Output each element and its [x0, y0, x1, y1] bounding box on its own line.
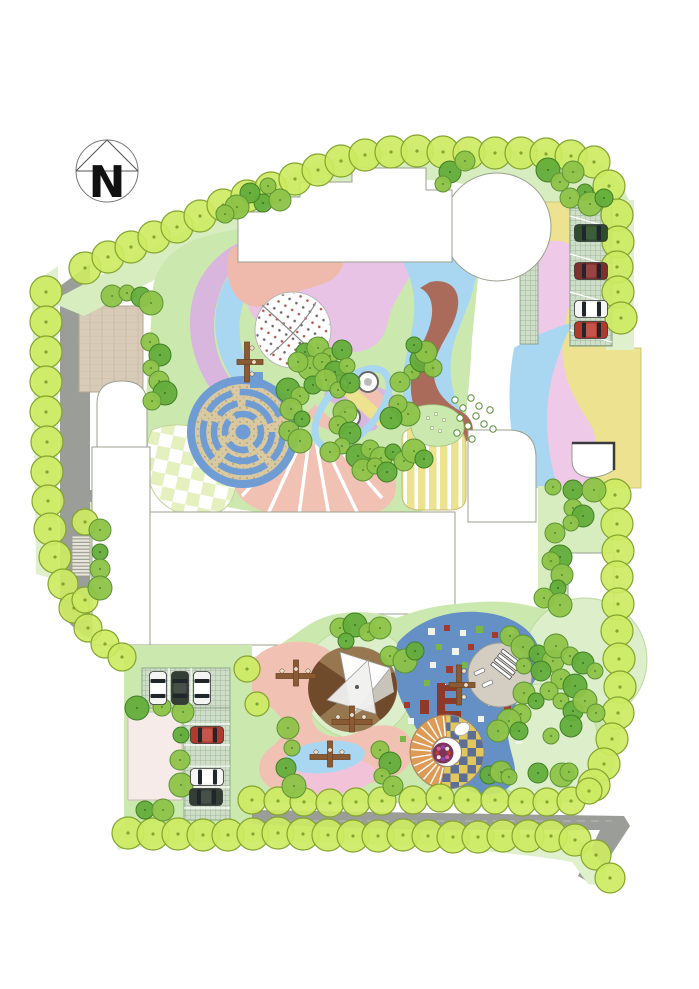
- perimeter-tree: [32, 485, 64, 517]
- perimeter-tree: [39, 541, 71, 573]
- bush: [452, 397, 458, 403]
- perimeter-tree: [30, 396, 62, 428]
- parked-car: [575, 301, 608, 318]
- dark-tree: [415, 450, 433, 468]
- perimeter-tree: [238, 786, 266, 814]
- bush: [481, 421, 487, 427]
- parked-car: [575, 225, 608, 242]
- bush: [468, 395, 474, 401]
- parked-car: [575, 322, 608, 339]
- perimeter-tree: [399, 786, 427, 814]
- perimeter-tree: [234, 656, 260, 682]
- pixel-square: [444, 625, 450, 631]
- medium-tree: [143, 392, 161, 410]
- perimeter-tree: [576, 778, 602, 804]
- dark-tree: [332, 340, 352, 360]
- perimeter-tree: [30, 366, 62, 398]
- perimeter-tree: [605, 302, 637, 334]
- perimeter-tree: [30, 336, 62, 368]
- parked-car: [575, 263, 608, 280]
- flower: [447, 751, 451, 755]
- parked-car: [194, 672, 211, 705]
- medium-tree: [587, 704, 605, 722]
- medium-tree: [152, 799, 174, 821]
- medium-tree: [277, 717, 299, 739]
- flower: [437, 747, 441, 751]
- flower-dot: [442, 418, 445, 421]
- parked-car: [191, 769, 224, 786]
- perimeter-tree: [30, 276, 62, 308]
- medium-tree: [139, 291, 163, 315]
- dark-tree: [340, 373, 360, 393]
- medium-tree: [288, 429, 312, 453]
- dark-tree: [173, 727, 189, 743]
- building-rounded-corner: [468, 430, 536, 522]
- flower-dot: [426, 416, 429, 419]
- parked-car: [190, 789, 223, 806]
- bush: [457, 415, 463, 421]
- pixel-square: [400, 736, 406, 742]
- flower: [441, 745, 445, 749]
- medium-tree: [435, 176, 451, 192]
- bush: [473, 413, 479, 419]
- parked-car: [191, 727, 224, 744]
- medium-tree: [455, 151, 475, 171]
- dark-tree: [531, 661, 551, 681]
- perimeter-tree: [601, 615, 633, 647]
- medium-tree: [170, 750, 190, 770]
- dark-tree: [125, 696, 149, 720]
- medium-tree: [516, 658, 532, 674]
- pixel-square: [492, 632, 498, 638]
- medium-tree: [89, 519, 111, 541]
- medium-tree: [216, 205, 234, 223]
- perimeter-tree: [31, 456, 63, 488]
- pavilion-box: [572, 443, 614, 477]
- perimeter-tree: [316, 789, 344, 817]
- pixel-square: [408, 718, 414, 724]
- medium-tree: [260, 178, 276, 194]
- flower: [445, 747, 449, 751]
- dark-tree: [380, 407, 402, 429]
- pixel-square: [452, 648, 459, 655]
- pixel-square: [430, 662, 436, 668]
- flower-dot: [438, 429, 441, 432]
- perimeter-tree: [454, 786, 482, 814]
- medium-tree: [545, 479, 561, 495]
- flower-dot: [430, 426, 433, 429]
- bush: [465, 423, 471, 429]
- building-circular: [443, 173, 551, 281]
- medium-tree: [548, 593, 572, 617]
- dark-tree: [528, 693, 544, 709]
- paved-plaza: [79, 306, 143, 392]
- pixel-square: [478, 716, 484, 722]
- compass-label: N: [89, 157, 126, 208]
- medium-tree: [288, 352, 308, 372]
- flower: [437, 755, 441, 759]
- flower: [441, 757, 445, 761]
- parked-car: [172, 672, 189, 705]
- dark-tree: [528, 763, 548, 783]
- dark-tree: [136, 801, 154, 819]
- medium-tree: [560, 188, 580, 208]
- dark-tree: [560, 715, 582, 737]
- dark-tree: [377, 462, 397, 482]
- dark-tree: [510, 722, 528, 740]
- medium-tree: [563, 515, 579, 531]
- bush: [454, 430, 460, 436]
- medium-tree: [88, 576, 112, 600]
- pixel-square: [468, 644, 474, 650]
- perimeter-tree: [34, 513, 66, 545]
- site-plan-svg: N: [0, 0, 699, 989]
- dark-tree: [406, 642, 424, 660]
- bush: [490, 426, 496, 432]
- bush: [476, 403, 482, 409]
- pixel-square: [428, 628, 435, 635]
- dark-tree: [338, 633, 354, 649]
- medium-tree: [587, 663, 603, 679]
- perimeter-tree: [508, 788, 536, 816]
- dark-tree: [563, 480, 583, 500]
- dark-tree: [92, 544, 108, 560]
- medium-tree: [320, 442, 340, 462]
- dark-tree: [406, 337, 422, 353]
- medium-tree: [390, 372, 410, 392]
- flower: [435, 751, 439, 755]
- bush: [469, 436, 475, 442]
- perimeter-tree: [426, 784, 454, 812]
- parked-car: [150, 672, 167, 705]
- perimeter-tree: [31, 426, 63, 458]
- medium-tree: [383, 776, 403, 796]
- medium-tree: [339, 358, 355, 374]
- flower-dot: [434, 412, 437, 415]
- dark-tree: [595, 189, 613, 207]
- medium-tree: [582, 478, 606, 502]
- bush: [487, 407, 493, 413]
- steps-strip: [72, 536, 90, 576]
- perimeter-tree: [481, 786, 509, 814]
- medium-tree: [562, 161, 584, 183]
- medium-tree: [282, 774, 306, 798]
- medium-tree: [501, 769, 517, 785]
- medium-tree: [543, 728, 559, 744]
- perimeter-tree: [603, 643, 635, 675]
- site-plan-page: N: [0, 0, 699, 989]
- ring-feature: [358, 372, 378, 392]
- perimeter-tree: [245, 692, 269, 716]
- medium-tree: [560, 763, 578, 781]
- pixel-square: [446, 666, 453, 673]
- medium-tree: [284, 740, 300, 756]
- perimeter-tree: [342, 788, 370, 816]
- medium-tree: [369, 617, 391, 639]
- perimeter-tree: [595, 863, 625, 893]
- flower: [445, 755, 449, 759]
- amphitheater: [410, 715, 484, 789]
- bush: [460, 405, 466, 411]
- pixel-square: [404, 702, 410, 708]
- perimeter-tree: [30, 306, 62, 338]
- pixel-square: [424, 680, 430, 686]
- medium-tree: [487, 720, 509, 742]
- medium-tree: [545, 523, 565, 543]
- pixel-square: [436, 644, 442, 650]
- perimeter-tree: [108, 643, 136, 671]
- pixel-square: [462, 662, 468, 668]
- pixel-square: [460, 630, 466, 636]
- pixel-square: [476, 626, 483, 633]
